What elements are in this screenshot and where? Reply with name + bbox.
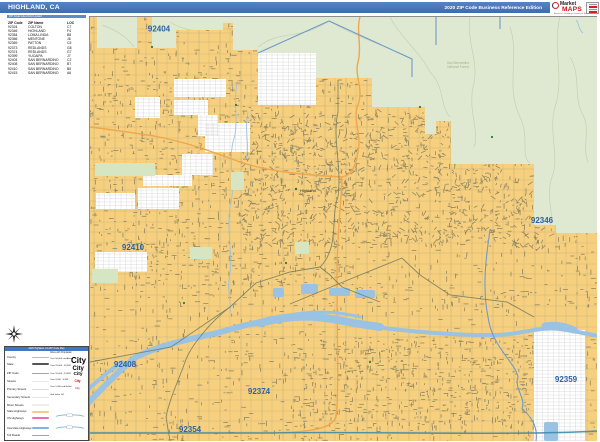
svg-text:92408: 92408 <box>114 360 137 369</box>
svg-text:92374: 92374 <box>248 387 271 396</box>
svg-text:92354: 92354 <box>179 425 202 434</box>
svg-text:National Forest: National Forest <box>447 65 469 69</box>
svg-text:92346: 92346 <box>531 216 554 225</box>
svg-text:92404: 92404 <box>148 25 171 34</box>
svg-text:92359: 92359 <box>555 375 578 384</box>
svg-text:92410: 92410 <box>122 243 145 252</box>
svg-text:Highland: Highland <box>300 188 316 193</box>
